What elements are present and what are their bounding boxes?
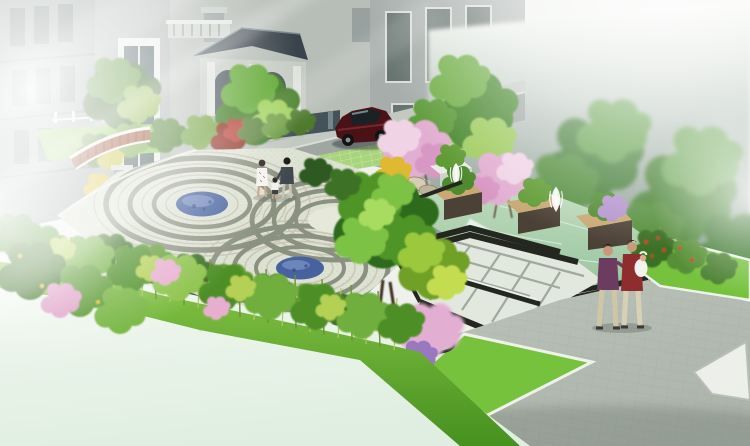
baby-head [640,255,646,261]
purple-shirt [597,258,619,290]
landscape-rendering [0,0,750,446]
head [603,246,613,256]
rendering-canvas [0,0,750,446]
baby-bundle [635,259,648,277]
wheel-hub [346,138,351,143]
